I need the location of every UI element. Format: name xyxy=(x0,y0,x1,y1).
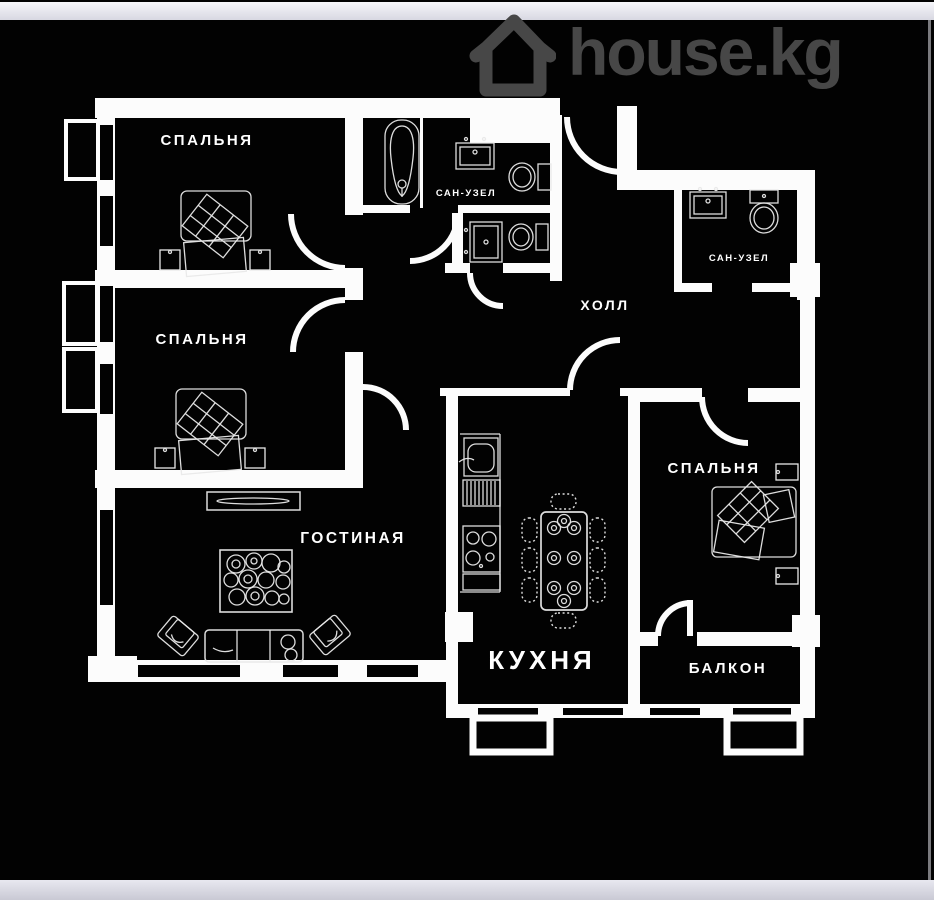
window-box-left-c xyxy=(64,349,97,411)
wall-hall-kitchen-a xyxy=(440,388,570,396)
kitchen-label: КУХНЯ xyxy=(488,645,596,675)
window-living-bottom-a xyxy=(138,665,240,677)
bedroom3-door-arc xyxy=(702,397,748,443)
entrance-door-arc xyxy=(567,117,622,172)
wall-living-kitchen-pier xyxy=(445,612,473,642)
sofa xyxy=(205,630,303,662)
window-living-left xyxy=(100,510,113,605)
window-box-balcony-south xyxy=(727,718,800,752)
bed-bedroom1 xyxy=(160,191,270,277)
wall-wc2-bottom-b xyxy=(503,263,560,273)
wall-bedroom3-top-a xyxy=(640,388,702,402)
wall-bath2-bottom-a xyxy=(674,283,712,292)
dining-table xyxy=(522,494,605,628)
bathroom2-label: САН-УЗЕЛ xyxy=(709,253,769,264)
wall-bed2-living-divider xyxy=(95,470,363,488)
floorplan-screenshot: house.kg xyxy=(0,0,934,900)
balcony-door-arc xyxy=(658,603,690,636)
window-bedroom2-b xyxy=(100,364,113,414)
living-room-label: ГОСТИНАЯ xyxy=(300,530,406,547)
window-box-kitchen-south xyxy=(473,718,550,752)
sink-bath2 xyxy=(690,188,726,219)
toilet-wc2 xyxy=(509,224,548,250)
chair xyxy=(590,578,605,602)
wall-balcony-top-b xyxy=(697,632,800,646)
floorplan-svg: СПАЛЬНЯ САН-УЗЕЛ САН-УЗЕЛ ХОЛЛ СПАЛЬНЯ С… xyxy=(0,0,934,900)
window-living-bottom-b xyxy=(283,665,338,677)
window-box-left-b xyxy=(64,283,97,344)
carpet xyxy=(220,550,292,612)
window-balcony-b xyxy=(733,708,791,715)
window-living-bottom-c xyxy=(367,665,418,677)
toilet-bath2 xyxy=(750,190,778,233)
toilet-bath1 xyxy=(509,163,551,191)
wall-entry-stub xyxy=(617,106,637,190)
hall-label: ХОЛЛ xyxy=(580,297,629,313)
bathroom1-label: САН-УЗЕЛ xyxy=(436,188,496,199)
bedroom1-door-arc xyxy=(291,214,345,268)
bathroom1-door-arc xyxy=(410,213,458,261)
bathtub xyxy=(385,120,419,204)
window-kitchen-b xyxy=(563,708,623,715)
bed-bedroom2 xyxy=(155,389,265,475)
wall-top-right xyxy=(637,170,815,190)
wall-bath2-bottom-b xyxy=(752,283,815,292)
wall-spine-a xyxy=(345,118,363,215)
wall-living-corner xyxy=(88,656,137,682)
bedroom1-label: СПАЛЬНЯ xyxy=(160,132,253,149)
kitchen-door-arc xyxy=(570,340,620,390)
wall-bath2-left xyxy=(674,190,682,290)
armchair-left xyxy=(157,615,200,657)
window-box-left-a xyxy=(66,121,98,179)
window-bedroom2-a xyxy=(100,286,113,342)
wall-wc2-bottom-a xyxy=(445,263,470,273)
chair xyxy=(551,494,576,509)
living-door-arc xyxy=(363,387,406,430)
bed-bedroom3 xyxy=(712,464,798,584)
window-bedroom1-a xyxy=(100,125,113,180)
chair xyxy=(551,613,576,628)
bedroom2-door-arc xyxy=(293,300,345,352)
bedroom3-label: СПАЛЬНЯ xyxy=(667,460,760,477)
wall-kitchen-bedroom3 xyxy=(628,388,640,718)
wc2-door-arc xyxy=(470,273,503,306)
chair xyxy=(522,548,537,572)
chair xyxy=(590,548,605,572)
wall-bedroom3-top-b xyxy=(748,388,800,402)
chair xyxy=(590,518,605,542)
window-kitchen-a xyxy=(478,708,538,715)
chair xyxy=(522,578,537,602)
wall-spine-c xyxy=(345,352,363,470)
tv-console xyxy=(207,492,300,510)
armchair-right xyxy=(309,614,352,656)
kitchen-counter xyxy=(459,434,500,592)
balcony-label: БАЛКОН xyxy=(689,660,767,677)
window-balcony-a xyxy=(650,708,700,715)
sink-wc2 xyxy=(465,222,503,262)
window-bedroom1-b xyxy=(100,196,113,246)
wall-bath1-top-block xyxy=(470,98,560,143)
wall-tub-alcove xyxy=(420,115,423,208)
bedroom2-label: СПАЛЬНЯ xyxy=(155,331,248,348)
chair xyxy=(522,518,537,542)
wall-right-main xyxy=(800,291,815,718)
wall-hall-kitchen-b xyxy=(620,388,640,396)
wall-bath1-bottom-a xyxy=(363,205,410,213)
wall-bath1-bottom-b xyxy=(458,205,560,213)
